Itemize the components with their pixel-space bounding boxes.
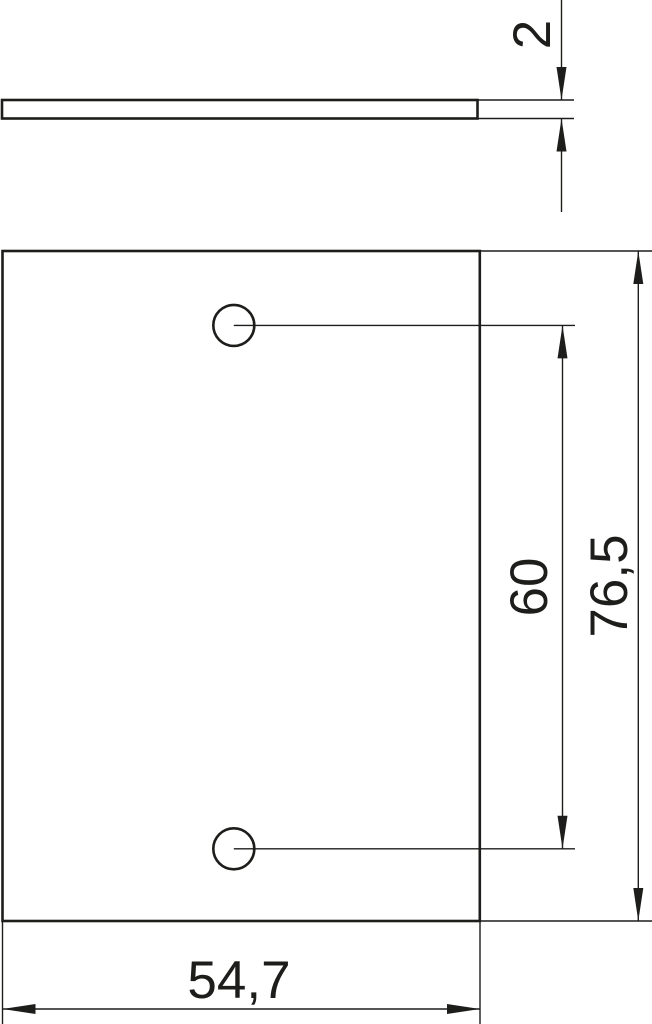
svg-text:54,7: 54,7 — [187, 951, 290, 1010]
svg-text:60: 60 — [500, 558, 559, 617]
svg-text:2: 2 — [503, 20, 562, 49]
svg-text:76,5: 76,5 — [580, 534, 639, 637]
